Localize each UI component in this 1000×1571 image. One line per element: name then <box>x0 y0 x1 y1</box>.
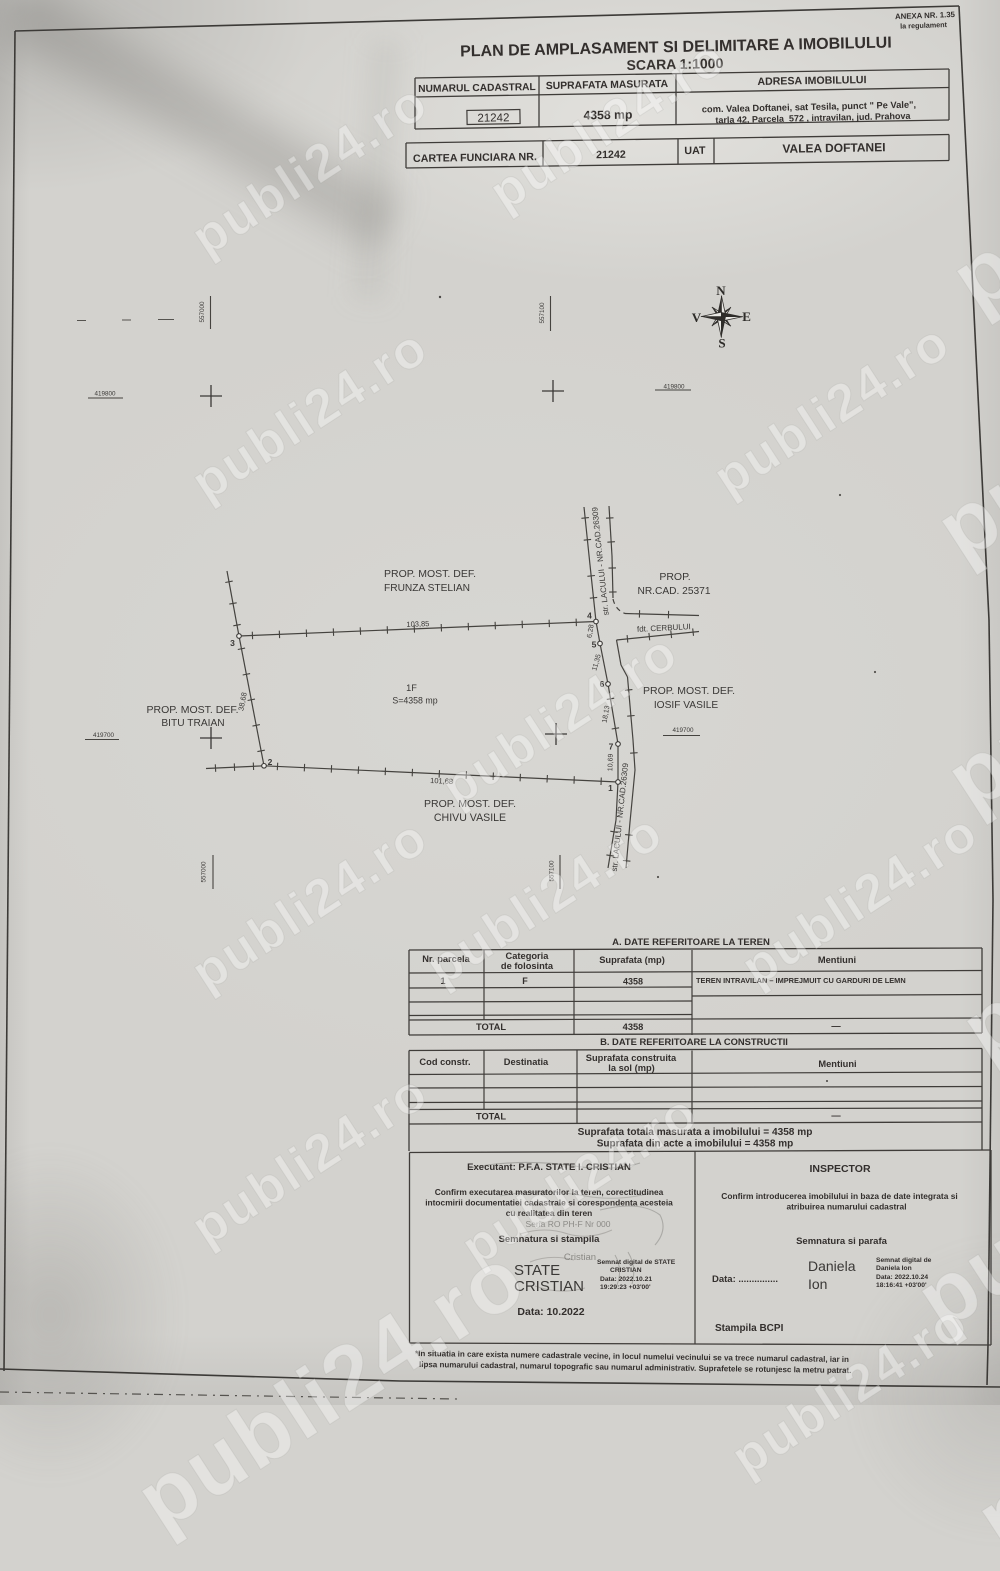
svg-text:STATE: STATE <box>514 1262 560 1279</box>
svg-text:2: 2 <box>268 757 273 767</box>
svg-text:SUPRAFATA MASURATA: SUPRAFATA MASURATA <box>546 79 669 92</box>
svg-text:4358 mp: 4358 mp <box>583 108 632 123</box>
svg-text:4358: 4358 <box>623 1022 644 1032</box>
svg-text:CARTEA FUNCIARA NR.: CARTEA FUNCIARA NR. <box>413 151 537 165</box>
svg-text:la regulament: la regulament <box>900 20 948 31</box>
svg-text:5: 5 <box>592 640 597 650</box>
svg-text:Suprafata (mp): Suprafata (mp) <box>599 955 665 965</box>
svg-text:18:16:41 +03'00': 18:16:41 +03'00' <box>876 1282 927 1289</box>
svg-text:6: 6 <box>600 679 605 689</box>
svg-text:VALEA DOFTANEI: VALEA DOFTANEI <box>782 140 885 156</box>
svg-text:SCARA 1:1000: SCARA 1:1000 <box>626 55 723 73</box>
svg-text:1F: 1F <box>406 683 417 693</box>
svg-text:Mentiuni: Mentiuni <box>818 955 856 965</box>
svg-text:S=4358 mp: S=4358 mp <box>392 696 437 706</box>
svg-text:Suprafata construita: Suprafata construita <box>586 1053 677 1063</box>
svg-text:10,69: 10,69 <box>607 753 615 771</box>
svg-text:Data: ...............: Data: ............... <box>712 1274 778 1285</box>
svg-text:Cod constr.: Cod constr. <box>419 1057 470 1067</box>
svg-text:CHIVU VASILE: CHIVU VASILE <box>434 812 506 824</box>
svg-text:419700: 419700 <box>93 732 115 739</box>
svg-text:557100: 557100 <box>539 302 546 324</box>
svg-text:Nr. parcela: Nr. parcela <box>422 954 470 964</box>
svg-text:Seria RO PH-F Nr 000: Seria RO PH-F Nr 000 <box>525 1219 610 1229</box>
svg-text:B. DATE REFERITOARE LA CONSTRU: B. DATE REFERITOARE LA CONSTRUCTII <box>600 1036 788 1047</box>
svg-text:la sol (mp): la sol (mp) <box>608 1063 655 1073</box>
svg-text:103,85: 103,85 <box>406 619 429 629</box>
svg-text:E: E <box>742 309 751 324</box>
svg-text:fdt. CERBULUI: fdt. CERBULUI <box>637 622 691 634</box>
svg-text:Data: 10.2022: Data: 10.2022 <box>517 1306 584 1318</box>
svg-text:21242: 21242 <box>596 149 626 161</box>
svg-text:3: 3 <box>230 638 235 648</box>
svg-text:TEREN INTRAVILAN – IMPREJMUIT: TEREN INTRAVILAN – IMPREJMUIT CU GARDURI… <box>696 976 906 985</box>
svg-text:de folosinta: de folosinta <box>501 961 554 971</box>
svg-text:4: 4 <box>587 611 592 621</box>
svg-text:7: 7 <box>609 742 614 752</box>
svg-text:419800: 419800 <box>94 391 116 398</box>
svg-text:1: 1 <box>440 976 445 986</box>
svg-text:FRUNZA STELIAN: FRUNZA STELIAN <box>384 583 470 594</box>
svg-text:TOTAL: TOTAL <box>476 1112 506 1122</box>
svg-text:1: 1 <box>608 783 613 793</box>
svg-text:557100: 557100 <box>549 860 556 882</box>
svg-text:Daniela: Daniela <box>808 1258 856 1274</box>
svg-text:NR.CAD. 25371: NR.CAD. 25371 <box>637 586 710 597</box>
svg-text:Cristian: Cristian <box>564 1252 596 1263</box>
svg-text:ADRESA IMOBILULUI: ADRESA IMOBILULUI <box>757 74 866 88</box>
svg-text:PROP. MOST. DEF.: PROP. MOST. DEF. <box>643 685 735 697</box>
svg-text:18,13: 18,13 <box>602 705 612 724</box>
svg-text:PROP.: PROP. <box>659 571 690 583</box>
svg-text:F: F <box>522 976 528 986</box>
svg-text:Semnat digital de: Semnat digital de <box>876 1257 932 1264</box>
svg-text:Daniela Ion: Daniela Ion <box>876 1265 912 1272</box>
svg-text:419700: 419700 <box>672 727 694 734</box>
svg-text:A. DATE REFERITOARE LA TEREN: A. DATE REFERITOARE LA TEREN <box>612 937 770 948</box>
svg-text:IOSIF VASILE: IOSIF VASILE <box>654 700 719 711</box>
svg-text:—: — <box>831 1111 841 1121</box>
svg-text:cu realitatea din teren: cu realitatea din teren <box>506 1208 593 1218</box>
svg-text:Categoria: Categoria <box>506 951 550 961</box>
svg-text:N: N <box>716 283 726 298</box>
svg-text:Suprafata totala masurata a im: Suprafata totala masurata a imobilului =… <box>578 1127 813 1138</box>
svg-text:V: V <box>692 310 702 325</box>
svg-text:TOTAL: TOTAL <box>476 1022 506 1032</box>
svg-text:19:29:23 +03'00': 19:29:23 +03'00' <box>600 1284 651 1291</box>
svg-text:BITU TRAIAN: BITU TRAIAN <box>161 718 224 729</box>
svg-text:4358: 4358 <box>623 977 643 987</box>
svg-text:Mentiuni: Mentiuni <box>818 1059 856 1069</box>
svg-text:PROP. MOST. DEF.: PROP. MOST. DEF. <box>147 704 239 716</box>
svg-text:Data: 2022.10.24: Data: 2022.10.24 <box>876 1274 928 1281</box>
svg-text:101,68: 101,68 <box>430 776 453 786</box>
svg-text:Stampila BCPI: Stampila BCPI <box>715 1323 784 1334</box>
svg-text:CRISTIAN: CRISTIAN <box>610 1267 642 1274</box>
svg-text:PROP. MOST. DEF.: PROP. MOST. DEF. <box>384 568 476 580</box>
svg-text:NUMARUL CADASTRAL: NUMARUL CADASTRAL <box>418 82 536 95</box>
svg-text:PROP. MOST. DEF.: PROP. MOST. DEF. <box>424 798 516 810</box>
svg-text:Semnat digital de STATE: Semnat digital de STATE <box>597 1259 676 1266</box>
svg-text:Semnatura si parafa: Semnatura si parafa <box>796 1236 888 1247</box>
svg-text:Destinatia: Destinatia <box>504 1057 549 1067</box>
svg-text:UAT: UAT <box>684 145 706 157</box>
svg-text:6,28: 6,28 <box>586 624 595 639</box>
svg-text:21242: 21242 <box>477 112 509 125</box>
svg-text:S: S <box>718 336 725 351</box>
svg-text:Data: 2022.10.21: Data: 2022.10.21 <box>600 1276 652 1283</box>
svg-text:11,35: 11,35 <box>591 653 602 671</box>
svg-text:CRISTIAN: CRISTIAN <box>514 1278 584 1295</box>
svg-text:atribuirea numarului cadastral: atribuirea numarului cadastral <box>786 1202 906 1212</box>
svg-text:557000: 557000 <box>199 301 206 323</box>
svg-text:INSPECTOR: INSPECTOR <box>809 1163 870 1175</box>
svg-text:—: — <box>831 1021 841 1031</box>
svg-text:557000: 557000 <box>201 861 208 883</box>
svg-text:Ion: Ion <box>808 1276 827 1292</box>
svg-text:Confirm introducerea imobilulu: Confirm introducerea imobilului in baza … <box>721 1191 957 1201</box>
svg-text:Semnatura si stampila: Semnatura si stampila <box>499 1234 601 1245</box>
svg-text:Suprafata din acte a imobilulu: Suprafata din acte a imobilului = 4358 m… <box>597 1139 793 1150</box>
